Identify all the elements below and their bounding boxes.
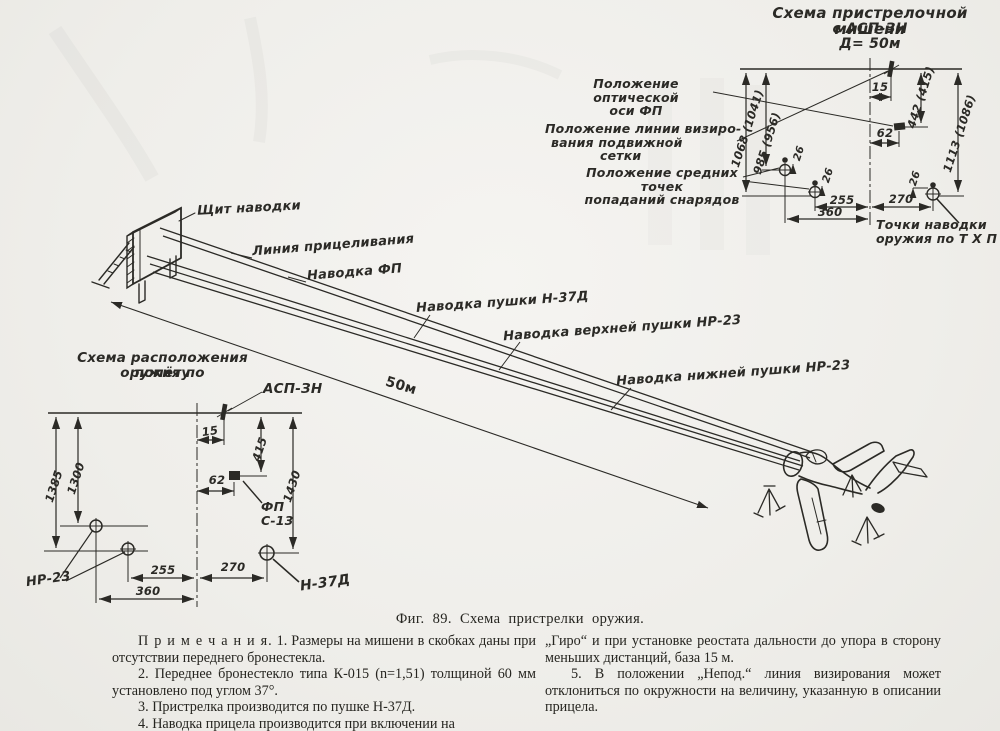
note-4: 4. Наводка прицела производится при вклю… [112,716,536,731]
note-2: 2. Переднее бронестекло типа К-015 (n=1,… [112,666,536,699]
notes-lead: П р и м е ч а н и я. [138,633,273,649]
impact-points-line2: попаданий снарядов [576,193,748,207]
fp-label-line2: С-13 [261,514,294,528]
dim-62-layout: 62 [200,474,234,486]
note-5: 5. В положении „Непод.“ линия визировани… [545,666,941,716]
target-scheme-title-line2: с АСП-ЗН [740,22,1000,37]
aiming-board-drawing [92,208,195,303]
fp-label-line1: ФП [261,500,294,514]
note-3: 3. Пристрелка производится по пушке Н-37… [112,699,536,716]
figure-caption: Фиг. 89. Схема пристрелки оружия. [320,611,720,628]
impact-points-line1: Положение средних точек [576,166,748,193]
aiming-points-line2: оружия по Т Х П [876,232,997,246]
asp-label: АСП-ЗН [263,382,322,397]
note-4-continuation: „Гиро“ и при установке реостата дальност… [545,633,941,666]
layout-title-line2: полёту [45,366,280,381]
dim-270-layout: 270 [203,561,263,573]
dim-360-layout: 360 [112,585,184,597]
dim-62-target: 62 [870,127,900,139]
scanned-manual-page: Схема пристрелочной мишени с АСП-ЗН Д= 5… [0,0,1000,731]
dim-360-target: 360 [800,206,860,218]
dim-255-layout: 255 [135,564,191,576]
sight-line-line1: Положение линии визиро- [545,122,750,136]
dim-15-target: 15 [868,81,892,93]
optical-axis-line1: Положение оптической [552,77,720,104]
sight-line-line2: вания подвижной [545,136,750,150]
notes-left-column: П р и м е ч а н и я. 1. Размеры на мишен… [112,633,536,731]
dim-270-target: 270 [874,193,928,205]
fp-s13-label: ФП С-13 [261,500,294,527]
aiming-points-label: Точки наводки оружия по Т Х П [876,218,997,245]
note-1: П р и м е ч а н и я. 1. Размеры на мишен… [112,633,536,666]
optical-axis-line2: оси ФП [552,104,720,118]
optical-axis-label: Положение оптической оси ФП [552,77,720,118]
target-scheme-title-line3: Д= 50м [740,37,1000,52]
notes-right-column: „Гиро“ и при установке реостата дальност… [545,633,941,716]
sight-line-label: Положение линии визиро- вания подвижной … [545,122,750,163]
aiming-points-line1: Точки наводки [876,218,997,232]
sight-line-line3: сетки [545,149,750,163]
impact-points-label: Положение средних точек попаданий снаряд… [576,166,748,207]
